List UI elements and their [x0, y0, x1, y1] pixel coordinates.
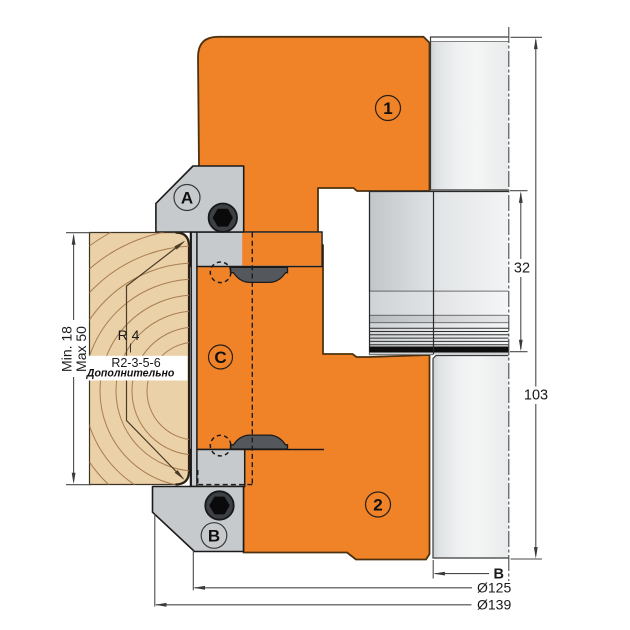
- svg-text:Дополнительно: Дополнительно: [86, 368, 175, 380]
- svg-text:1: 1: [383, 99, 392, 118]
- svg-text:103: 103: [524, 388, 548, 404]
- svg-text:C: C: [214, 348, 226, 367]
- svg-text:R 4: R 4: [118, 327, 140, 343]
- svg-text:Ø139: Ø139: [477, 597, 511, 613]
- svg-text:B: B: [208, 527, 220, 546]
- svg-text:Ø125: Ø125: [477, 580, 511, 596]
- svg-text:32: 32: [514, 261, 530, 277]
- svg-text:A: A: [181, 189, 193, 208]
- svg-text:Max 50: Max 50: [73, 326, 89, 372]
- svg-text:2: 2: [373, 496, 382, 515]
